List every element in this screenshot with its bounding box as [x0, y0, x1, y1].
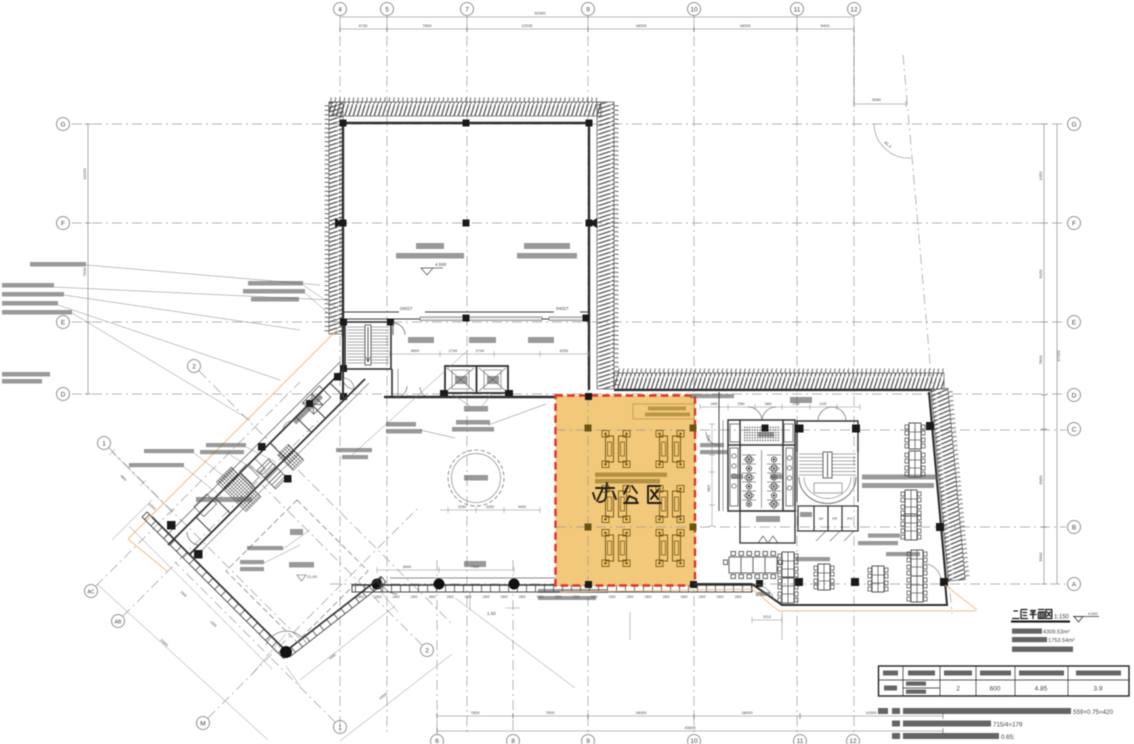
svg-text:04027: 04027	[400, 306, 413, 311]
svg-text:43600: 43600	[684, 725, 696, 730]
svg-text:7500: 7500	[546, 710, 556, 715]
svg-text:1500: 1500	[698, 595, 705, 599]
svg-text:14300: 14300	[865, 710, 877, 715]
svg-text:4400: 4400	[518, 505, 526, 509]
svg-text:9: 9	[586, 738, 590, 744]
svg-text:4309.53m²: 4309.53m²	[1043, 630, 1070, 636]
svg-text:1500: 1500	[428, 595, 435, 599]
svg-text:1050: 1050	[1038, 171, 1043, 181]
svg-text:5600: 5600	[1038, 552, 1043, 562]
svg-text:7800: 7800	[471, 710, 481, 715]
svg-text:6: 6	[435, 738, 439, 744]
svg-text:3250: 3250	[458, 505, 466, 509]
svg-text:7900: 7900	[471, 565, 479, 569]
svg-text:1500: 1500	[410, 595, 417, 599]
svg-text:1: 1	[102, 441, 106, 448]
svg-text:1500: 1500	[392, 595, 399, 599]
svg-text:600: 600	[990, 686, 1001, 693]
svg-text:3250: 3250	[486, 505, 494, 509]
svg-text:10: 10	[690, 7, 698, 14]
svg-text:1500: 1500	[662, 595, 669, 599]
svg-text:4.500: 4.500	[435, 262, 447, 267]
svg-text:1500: 1500	[464, 595, 471, 599]
svg-text:E: E	[61, 320, 66, 327]
svg-text:M: M	[200, 721, 205, 728]
svg-text:6250: 6250	[560, 349, 568, 353]
svg-text:21.00: 21.00	[307, 574, 318, 579]
svg-text:2: 2	[956, 686, 960, 693]
svg-text:7800: 7800	[1038, 355, 1043, 365]
svg-text:E: E	[1072, 320, 1077, 327]
svg-text:11: 11	[797, 738, 804, 744]
svg-text:F: F	[61, 221, 65, 228]
svg-text:10: 10	[690, 738, 698, 744]
svg-text:F: F	[1072, 221, 1076, 228]
svg-text:0.65;: 0.65;	[1001, 734, 1015, 741]
svg-text:AB: AB	[115, 620, 122, 626]
svg-text:2740: 2740	[449, 349, 457, 353]
svg-text:1500: 1500	[482, 595, 489, 599]
svg-text:7: 7	[465, 7, 469, 14]
svg-text:1500: 1500	[716, 595, 723, 599]
svg-text:04027: 04027	[556, 306, 569, 311]
svg-text:1860: 1860	[764, 402, 771, 406]
svg-text:18000: 18000	[635, 710, 647, 715]
svg-text:1500: 1500	[626, 595, 633, 599]
svg-text:1500: 1500	[644, 595, 651, 599]
svg-text:4800: 4800	[411, 349, 419, 353]
svg-text:4730: 4730	[359, 23, 369, 28]
svg-text:8: 8	[511, 738, 515, 744]
svg-text:C: C	[1072, 427, 1077, 434]
svg-text:9: 9	[586, 7, 590, 14]
svg-text:4.000: 4.000	[1088, 612, 1098, 616]
svg-text:47150: 47150	[1056, 350, 1061, 362]
svg-text:PY: PY	[847, 516, 853, 521]
svg-text:2740: 2740	[476, 349, 484, 353]
svg-text:5: 5	[385, 7, 389, 14]
svg-text:1.50: 1.50	[487, 611, 496, 616]
svg-text:559×0.75=420: 559×0.75=420	[1073, 709, 1113, 716]
svg-text:1500: 1500	[680, 595, 687, 599]
svg-text:7600: 7600	[423, 23, 433, 28]
svg-text:2: 2	[192, 364, 196, 371]
svg-text:12030: 12030	[521, 23, 533, 28]
svg-text:1500: 1500	[518, 595, 525, 599]
svg-text:3600: 3600	[707, 485, 711, 492]
svg-text:7930: 7930	[82, 267, 87, 277]
svg-text:11: 11	[794, 7, 801, 14]
svg-text:6400: 6400	[403, 565, 411, 569]
svg-text:3213: 3213	[763, 615, 771, 619]
svg-text:5400: 5400	[821, 23, 831, 28]
svg-text:1500: 1500	[500, 595, 507, 599]
svg-text:4.85: 4.85	[1035, 686, 1048, 693]
svg-text:XF: XF	[818, 516, 824, 521]
svg-text:G: G	[60, 122, 65, 129]
svg-text:4: 4	[338, 7, 342, 14]
svg-text:10150: 10150	[82, 168, 87, 180]
svg-text:2: 2	[425, 648, 429, 655]
svg-text:18000: 18000	[741, 710, 753, 715]
svg-text:1500: 1500	[374, 595, 381, 599]
svg-text:1500: 1500	[734, 595, 741, 599]
svg-text:18000: 18000	[635, 23, 647, 28]
svg-text:3.9: 3.9	[1093, 686, 1102, 693]
svg-text:1500: 1500	[608, 595, 615, 599]
svg-text:AC: AC	[88, 590, 95, 596]
svg-text:715/4=179: 715/4=179	[993, 722, 1023, 729]
svg-text:18000: 18000	[739, 23, 751, 28]
svg-text:9150: 9150	[1038, 269, 1043, 279]
svg-text:B: B	[1072, 525, 1076, 532]
svg-text:D: D	[61, 392, 66, 399]
svg-text:2750: 2750	[792, 402, 799, 406]
svg-text:1: 1	[338, 725, 342, 732]
svg-text:A: A	[1072, 582, 1077, 589]
svg-text:2350: 2350	[737, 402, 744, 406]
svg-text:1:150: 1:150	[1054, 615, 1070, 621]
svg-text:52300: 52300	[534, 11, 546, 16]
svg-text:1753.54m²: 1753.54m²	[1048, 638, 1075, 644]
svg-text:G: G	[1071, 122, 1076, 129]
svg-text:5060: 5060	[872, 97, 882, 102]
svg-text:6000: 6000	[1038, 475, 1043, 485]
svg-text:2400: 2400	[710, 402, 717, 406]
svg-text:D: D	[1072, 393, 1077, 400]
svg-text:12: 12	[850, 7, 858, 14]
svg-text:12: 12	[849, 738, 857, 744]
svg-text:PF: PF	[832, 516, 838, 521]
svg-text:2100: 2100	[819, 402, 826, 406]
svg-text:1500: 1500	[446, 595, 453, 599]
